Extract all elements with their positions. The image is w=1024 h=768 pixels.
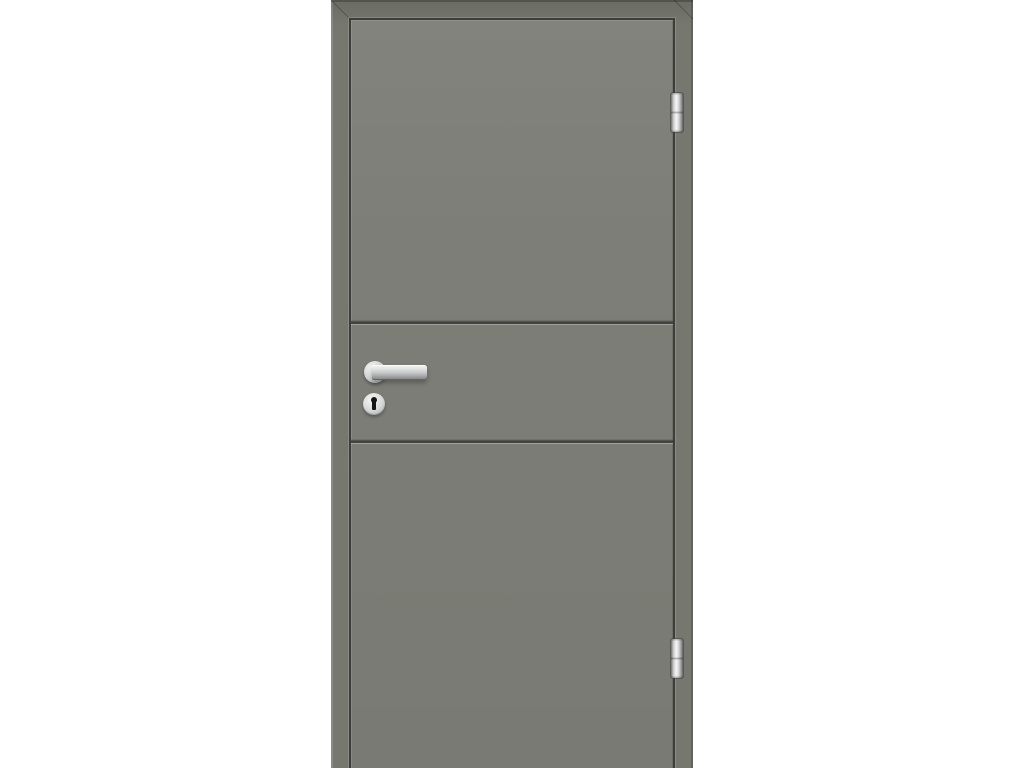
hinge-bottom: [671, 639, 683, 678]
door-leaf: [351, 20, 673, 768]
keyhole-icon: [371, 397, 377, 403]
door-frame: [331, 0, 693, 768]
keyhole-escutcheon: [363, 393, 385, 415]
hinge-top: [671, 93, 683, 132]
door-handle-lever: [372, 365, 427, 380]
door-groove-upper: [351, 321, 673, 324]
door-product-photo: [0, 0, 1024, 768]
frame-miter-top-right-line: [674, 0, 693, 19]
door-rebate-gap: [349, 18, 675, 768]
frame-miter-top-left-line: [331, 0, 350, 19]
door-groove-lower: [351, 440, 673, 443]
